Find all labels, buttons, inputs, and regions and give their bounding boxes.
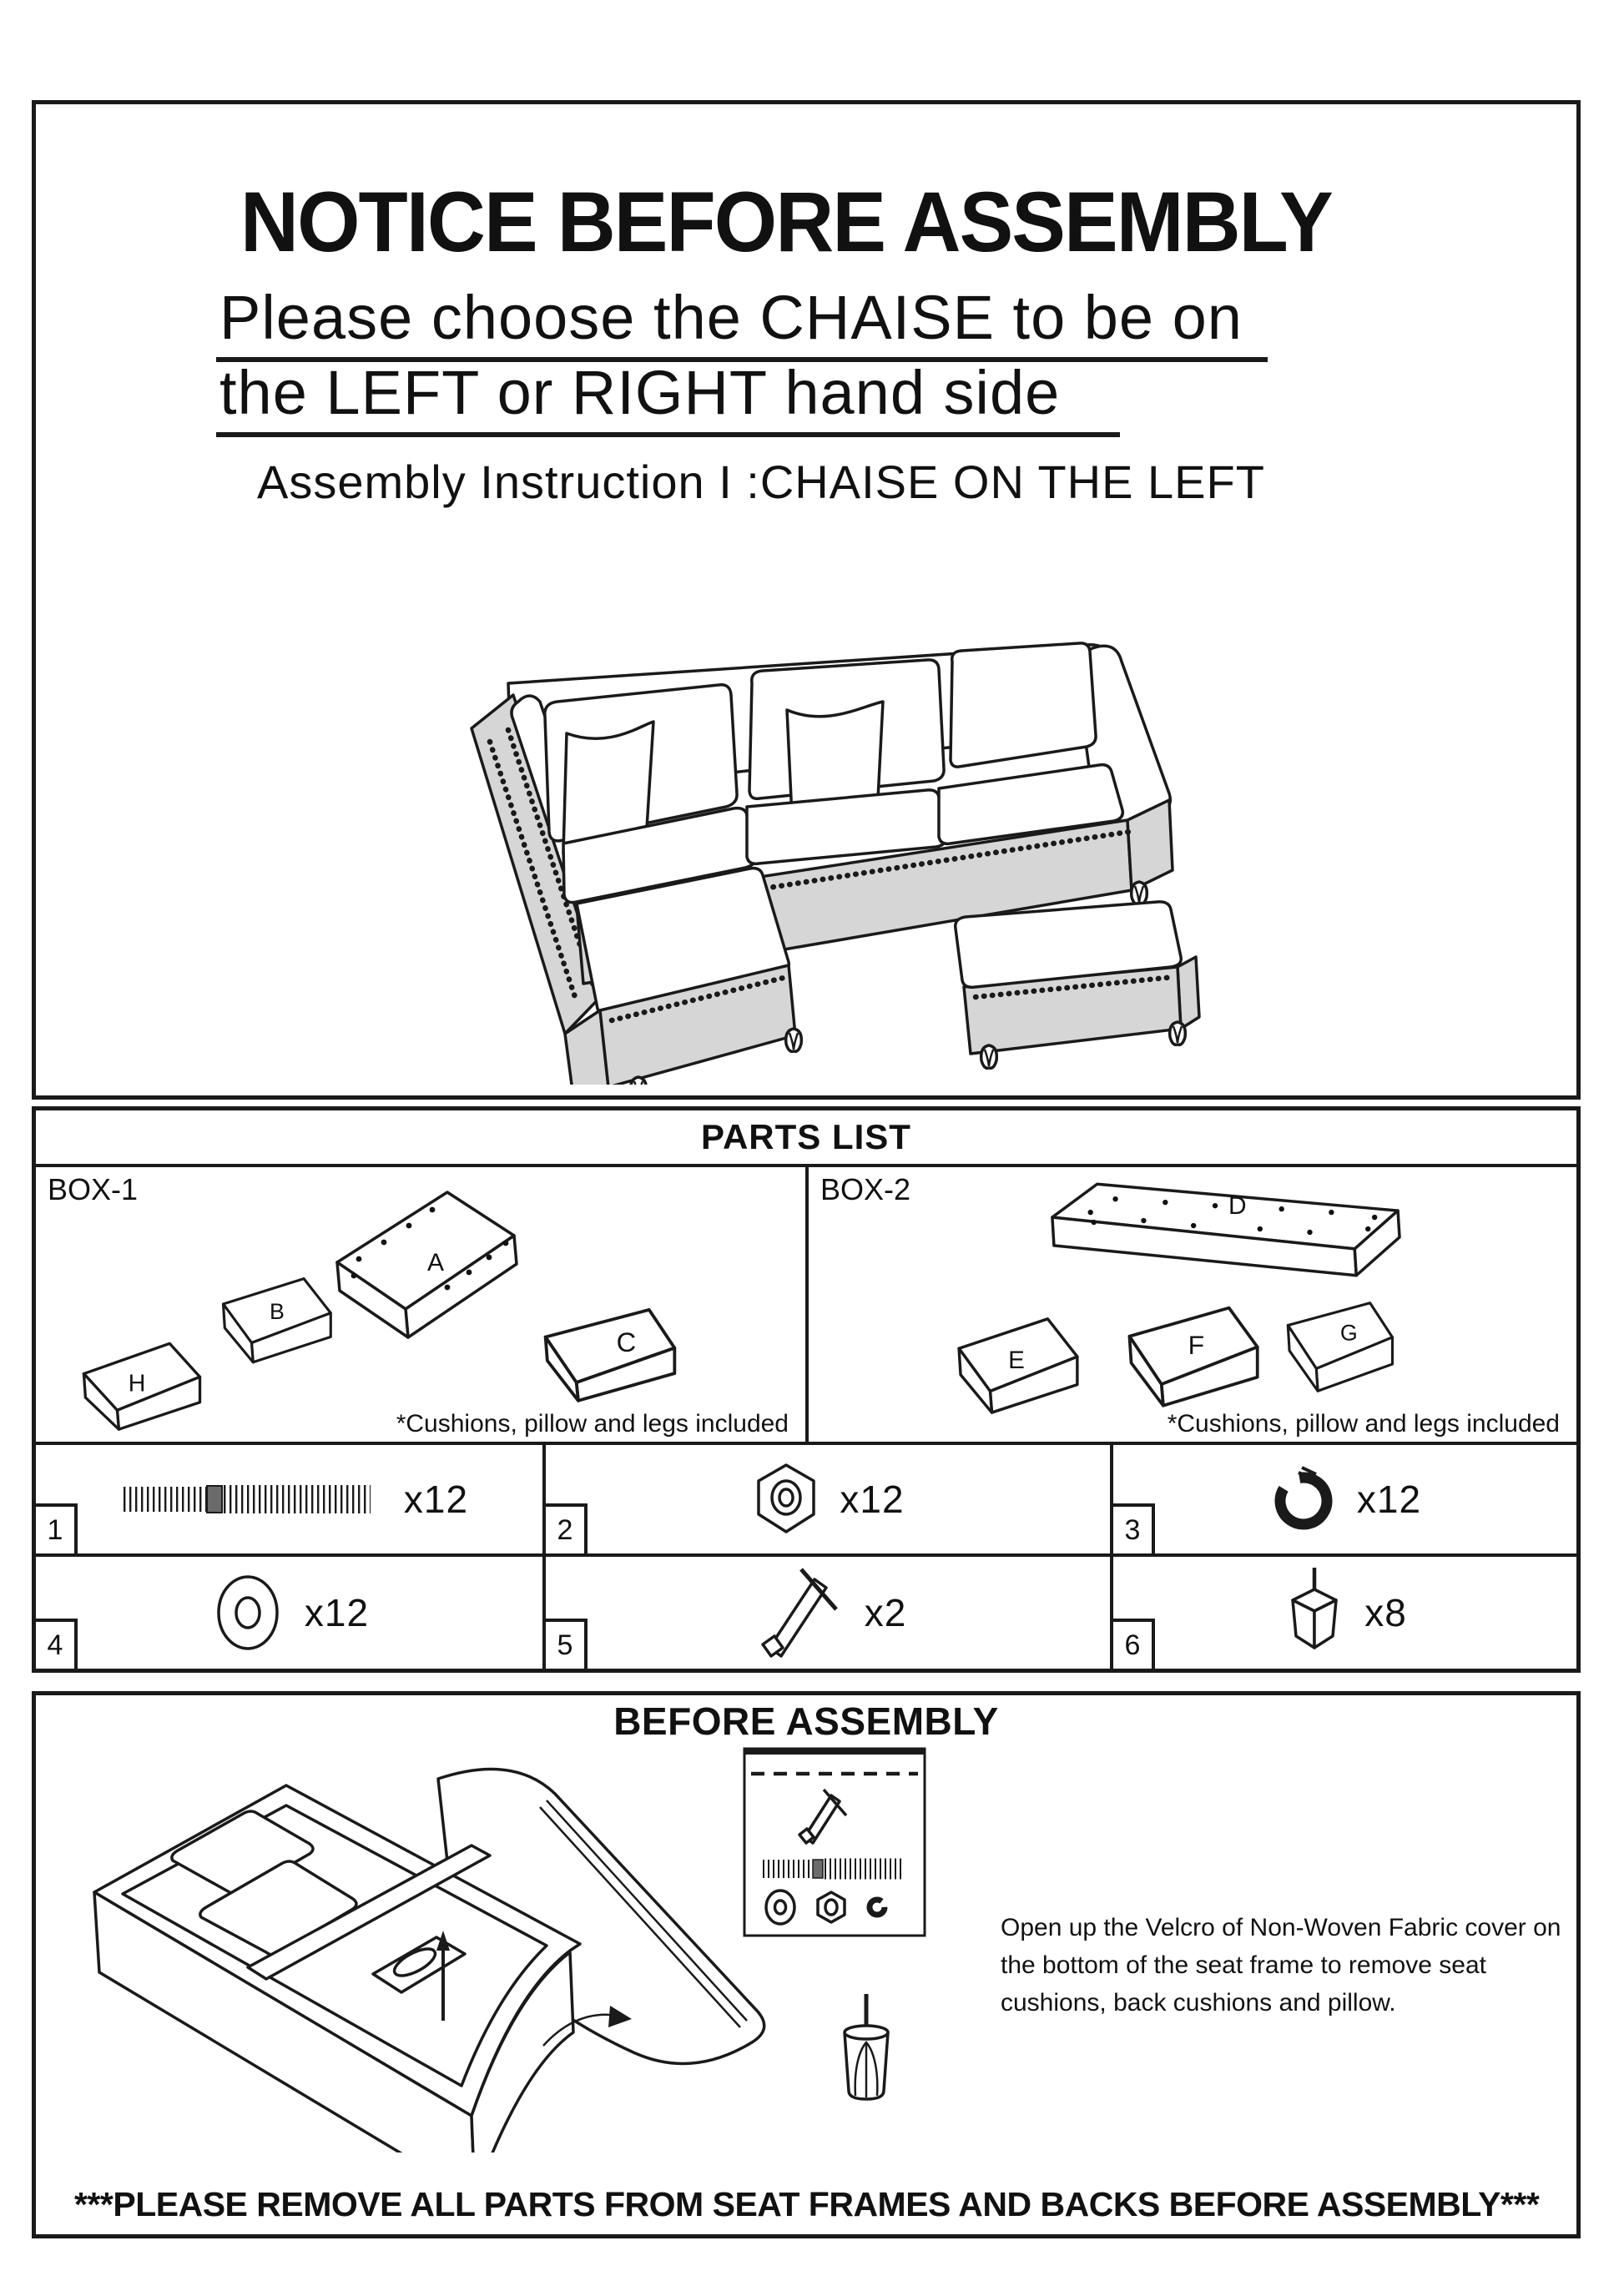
- part-g-label: G: [1340, 1320, 1358, 1345]
- part-b-illustration: B: [213, 1269, 340, 1367]
- bolt-icon: [110, 1469, 386, 1529]
- part-a-illustration: A: [320, 1182, 521, 1347]
- before-assembly-title: BEFORE ASSEMBLY: [36, 1699, 1576, 1744]
- nut-icon: [751, 1461, 821, 1538]
- hardware-cell-wrench: x2 5: [546, 1557, 1113, 1669]
- hardware-tag-1: 1: [33, 1503, 78, 1557]
- box2-footnote: *Cushions, pillow and legs included: [1168, 1410, 1560, 1438]
- hardware-tag-6: 6: [1110, 1619, 1155, 1672]
- box1-footnote: *Cushions, pillow and legs included: [396, 1410, 789, 1438]
- wrench-qty: x2: [865, 1590, 907, 1635]
- part-f-illustration: F: [1116, 1299, 1269, 1409]
- part-h-label: H: [129, 1370, 146, 1397]
- part-a-label: A: [427, 1249, 444, 1276]
- hardware-tag-3: 3: [1110, 1503, 1155, 1557]
- bolt-qty: x12: [404, 1477, 468, 1522]
- assembly-instruction-page: { "colors": {"line": "#1a1a1a", "panel_g…: [0, 0, 1624, 2296]
- hardware-bag-illustration: [741, 1742, 928, 1941]
- hardware-grid: x12 1 x12 2 x12 3: [36, 1442, 1576, 1669]
- page-title: NOTICE BEFORE ASSEMBLY: [240, 179, 1332, 264]
- sectional-sofa-drawing: [428, 630, 1263, 1085]
- part-d-label: D: [1228, 1192, 1247, 1220]
- before-assembly-section: BEFORE ASSEMBLY: [32, 1691, 1581, 2238]
- parts-list-title: PARTS LIST: [36, 1110, 1576, 1167]
- sofa-illustration: [428, 630, 1263, 1085]
- nut-qty: x12: [840, 1477, 904, 1522]
- box1-label: BOX-1: [48, 1172, 138, 1207]
- spring-washer-qty: x12: [1357, 1477, 1421, 1522]
- hardware-tag-5: 5: [542, 1619, 588, 1672]
- wrench-tool-icon: [749, 1559, 846, 1666]
- part-f-label: F: [1188, 1330, 1205, 1360]
- open-box-illustration: [79, 1752, 784, 2152]
- box2-panel: BOX-2 D: [805, 1167, 1576, 1445]
- hardware-cell-nut: x12 2: [546, 1445, 1113, 1557]
- hardware-cell-bolt: x12 1: [36, 1445, 546, 1557]
- hardware-cell-spring-washer: x12 3: [1113, 1445, 1576, 1557]
- flat-washer-qty: x12: [305, 1590, 369, 1635]
- box2-label: BOX-2: [820, 1172, 910, 1207]
- hardware-cell-flat-washer: x12 4: [36, 1557, 546, 1669]
- leg-illustration: [827, 1992, 905, 2107]
- subtitle-line-2: the LEFT or RIGHT hand side: [216, 360, 1120, 437]
- hardware-cell-leg: x8 6: [1113, 1557, 1576, 1669]
- part-d-illustration: D: [1039, 1174, 1405, 1284]
- part-b-label: B: [270, 1299, 285, 1324]
- part-e-label: E: [1008, 1347, 1025, 1374]
- leg-qty: x8: [1364, 1590, 1407, 1635]
- notice-section: NOTICE BEFORE ASSEMBLY Please choose the…: [32, 100, 1581, 1100]
- part-g-illustration: G: [1276, 1291, 1403, 1396]
- part-h-illustration: H: [74, 1332, 209, 1432]
- before-assembly-note: Open up the Velcro of Non-Woven Fabric c…: [1001, 1909, 1589, 2022]
- part-c-illustration: C: [532, 1301, 688, 1402]
- instruction-line: Assembly Instruction I :CHAISE ON THE LE…: [257, 456, 1265, 508]
- part-e-illustration: E: [947, 1309, 1087, 1416]
- hardware-tag-4: 4: [33, 1619, 78, 1672]
- part-c-label: C: [617, 1327, 637, 1357]
- subtitle-line-1: Please choose the CHAISE to be on: [216, 285, 1268, 362]
- flat-washer-icon: [209, 1569, 286, 1656]
- leg-icon: [1283, 1566, 1346, 1659]
- hardware-tag-2: 2: [542, 1503, 588, 1557]
- box1-panel: BOX-1 A: [36, 1167, 805, 1445]
- spring-washer-icon: [1268, 1459, 1339, 1539]
- footer-warning: ***PLEASE REMOVE ALL PARTS FROM SEAT FRA…: [74, 2185, 1539, 2224]
- parts-list-section: PARTS LIST BOX-1 A: [32, 1106, 1581, 1673]
